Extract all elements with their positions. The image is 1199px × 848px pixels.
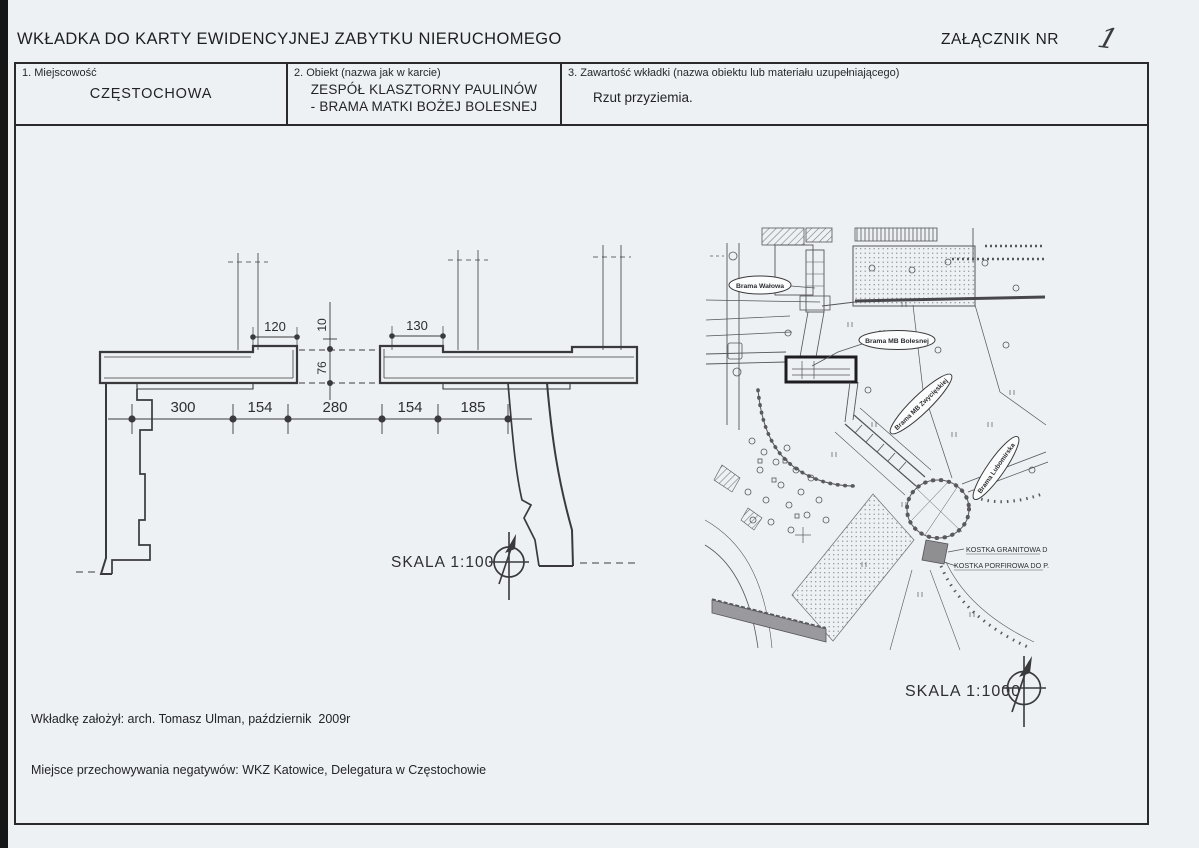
map-survey-symbol bbox=[710, 252, 742, 376]
svg-text:120: 120 bbox=[264, 319, 286, 334]
svg-text:Brama Wałowa: Brama Wałowa bbox=[736, 283, 784, 290]
svg-text:Brama MB Bolesnej: Brama MB Bolesnej bbox=[865, 338, 929, 345]
map-label-brama-lubomirska: Brama Lubomirska bbox=[967, 432, 1025, 504]
svg-text:154: 154 bbox=[247, 399, 272, 416]
svg-text:10: 10 bbox=[315, 318, 329, 332]
svg-text:76: 76 bbox=[315, 361, 329, 375]
svg-text:Brama MB Zwycięskiej: Brama MB Zwycięskiej bbox=[894, 377, 950, 432]
map-label-brama-walowa: Brama Wałowa bbox=[729, 276, 815, 294]
site-plan-drawing: Brama Wałowa Brama MB Bolesnej Brama MB … bbox=[705, 228, 1049, 727]
svg-text:280: 280 bbox=[322, 399, 347, 416]
svg-text:185: 185 bbox=[460, 399, 485, 416]
plan-scale-label: SKALA 1:100 bbox=[391, 554, 494, 571]
plan-axis-lines bbox=[228, 245, 631, 350]
svg-text:Brama Lubomirska: Brama Lubomirska bbox=[977, 442, 1017, 495]
svg-text:130: 130 bbox=[406, 318, 428, 333]
map-paving-labels: KOSTKA GRANITOWA D KOSTKA PORFIROWA DO P… bbox=[954, 545, 1049, 570]
plan-dim-vertical: 10 76 bbox=[315, 302, 337, 400]
floor-plan-drawing: 120 130 10 76 bbox=[76, 245, 640, 600]
svg-text:300: 300 bbox=[170, 399, 195, 416]
plan-opening-dashes bbox=[299, 350, 378, 383]
drawings-overlay: 120 130 10 76 bbox=[0, 0, 1199, 848]
plan-dim-row: 300 154 280 154 185 bbox=[108, 399, 532, 434]
map-north-arrow-icon bbox=[1002, 656, 1046, 727]
map-scalloped-wall bbox=[758, 390, 855, 486]
map-stippled-building bbox=[792, 494, 914, 641]
plan-right-wall bbox=[380, 346, 637, 389]
map-circular-plaza bbox=[907, 480, 969, 538]
north-arrow-icon bbox=[489, 532, 529, 600]
plan-right-leg-wall bbox=[508, 383, 640, 566]
svg-text:154: 154 bbox=[397, 399, 422, 416]
map-rampart bbox=[712, 465, 826, 642]
map-label-brama-mb-bolesnej: Brama MB Bolesnej bbox=[859, 331, 935, 350]
plan-left-wall bbox=[100, 346, 297, 389]
map-scale-label: SKALA 1:1000 bbox=[905, 683, 1021, 700]
svg-text:KOSTKA GRANITOWA D: KOSTKA GRANITOWA D bbox=[966, 545, 1047, 554]
plan-left-leg-wall bbox=[76, 383, 152, 574]
svg-text:KOSTKA PORFIROWA DO P.: KOSTKA PORFIROWA DO P. bbox=[954, 561, 1049, 570]
map-label-brama-mb-zwycieskiej: Brama MB Zwycięskiej bbox=[885, 368, 958, 439]
scanned-heritage-card-page: WKŁADKA DO KARTY EWIDENCYJNEJ ZABYTKU NI… bbox=[0, 0, 1199, 848]
map-gate-highlight-rect bbox=[786, 344, 862, 382]
